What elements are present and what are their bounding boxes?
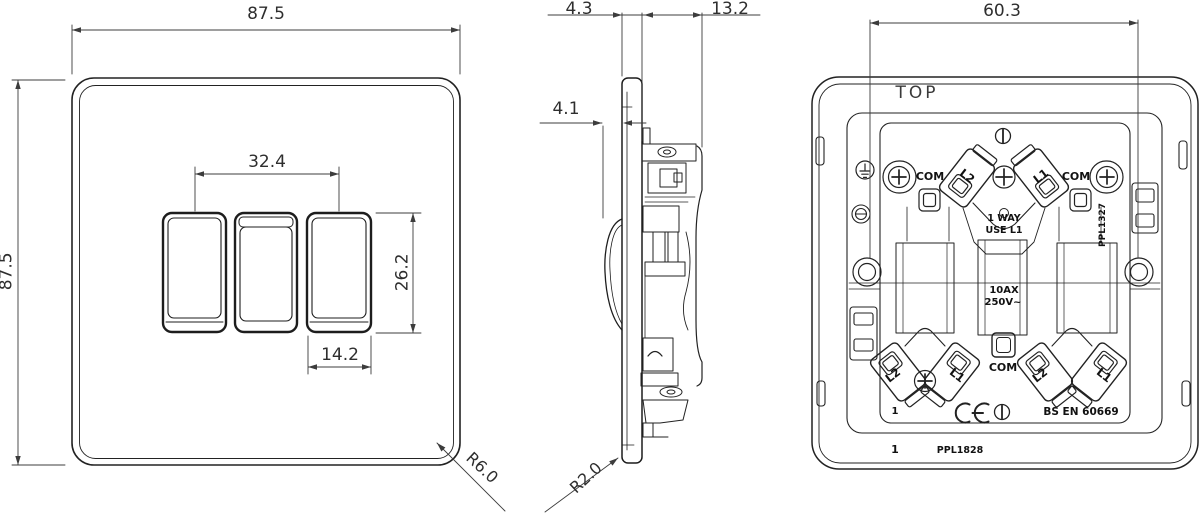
upper-terminal-cluster: [883, 142, 1123, 254]
ce-mark-icon: [956, 404, 989, 423]
footer-qty: 1: [885, 444, 905, 456]
side-view-drawing: [535, 0, 780, 514]
lower-com-label: COM: [981, 362, 1025, 374]
front-view-drawing: [0, 0, 540, 514]
front-width-dimension: 87.5: [236, 5, 296, 24]
rocker-switch-2: [235, 213, 297, 332]
rocker-spacing-dimension: 32.4: [237, 153, 297, 172]
front-dimension-lines: [12, 25, 505, 511]
gang-number: 1: [885, 406, 905, 417]
back-view-drawing: [780, 0, 1200, 514]
side-dimension-arrows: [593, 12, 702, 465]
one-way-note-line2: USE L1: [979, 226, 1029, 236]
rocker-projection-dimension: 4.1: [536, 100, 596, 119]
earth-symbol-icon: [856, 161, 874, 179]
one-way-note-line1: 1 WAY: [979, 214, 1029, 224]
slotted-screw-bottom-icon: [995, 405, 1010, 420]
slotted-screw-top-icon: [996, 129, 1011, 144]
plate-thickness-dimension: 4.3: [549, 0, 609, 19]
rocker-width-dimension: 14.2: [310, 346, 370, 365]
upper-com-left-label: COM: [908, 171, 952, 183]
side-plate-profile: [622, 78, 642, 463]
front-height-dimension: 87.5: [0, 241, 16, 301]
side-rocker-blade: [605, 219, 622, 330]
mechanism-part-number: PPL1327: [1099, 195, 1109, 255]
rating-line2: 250V~: [978, 297, 1028, 308]
rocker-switch-3: [307, 213, 371, 332]
mounting-centres-dimension: 60.3: [972, 2, 1032, 21]
technical-drawing-sheet: 87.5 87.5 32.4 26.2 14.2 R6.0 4.3 13.2 4…: [0, 0, 1200, 514]
standard-number: BS EN 60669: [1031, 407, 1131, 419]
rocker-height-dimension: 26.2: [394, 242, 413, 302]
top-orientation-label: TOP: [887, 84, 947, 103]
rating-line1: 10AX: [979, 285, 1029, 296]
slotted-screw-left-icon: [852, 205, 870, 223]
upper-com-right-label: COM: [1054, 171, 1098, 183]
rocker-switch-1: [163, 213, 226, 332]
footer-part-number: PPL1828: [920, 446, 1000, 456]
side-mechanism: [641, 128, 702, 437]
mechanism-depth-dimension: 13.2: [700, 0, 760, 19]
mounting-holes: [853, 258, 1153, 286]
